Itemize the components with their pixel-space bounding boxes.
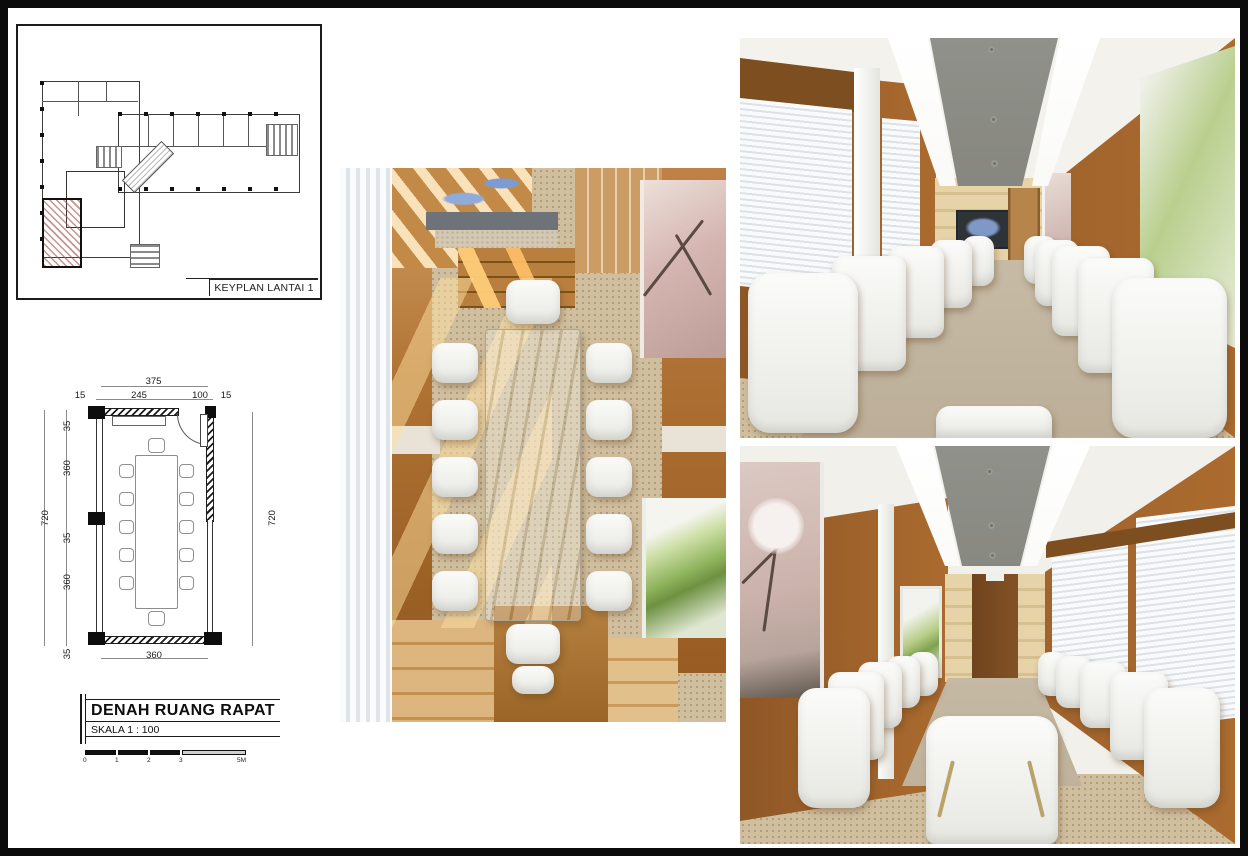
presentation-sheet: KEYPLAN LANTAI 1 375 15 245 100 15 35 36…	[0, 0, 1248, 856]
wall-light-band	[662, 426, 726, 452]
chair	[432, 457, 478, 497]
dim-label: 100	[186, 390, 214, 401]
render-top-view	[340, 168, 726, 722]
artwork-green	[642, 498, 726, 638]
chair	[586, 457, 632, 497]
keyplan-stairs	[130, 244, 160, 268]
wall-left	[96, 412, 103, 638]
dim-label: 375	[120, 376, 187, 387]
chair-plan	[148, 611, 165, 626]
wall-mounted-device	[986, 574, 1004, 581]
tree-canopy	[748, 498, 804, 554]
column	[88, 512, 105, 525]
scale-tick: 3	[179, 757, 183, 764]
wall-right-lower	[207, 520, 213, 634]
chair-plan	[119, 548, 134, 562]
branch-detail	[675, 234, 712, 296]
scale-tick: 5M	[237, 757, 246, 764]
chair	[506, 280, 560, 324]
ceiling-spotlight	[989, 552, 996, 559]
chair-plan	[179, 520, 194, 534]
floor-plan: 375 15 245 100 15 35 360 35 360 35 720 7…	[0, 360, 330, 680]
scale-tick: 0	[83, 757, 87, 764]
title-block: DENAH RUANG RAPAT SKALA 1 : 100 0 1 2 3 …	[0, 690, 320, 780]
title-block-line	[86, 736, 280, 737]
scale-bar: 0 1 2 3 5M	[85, 748, 251, 766]
scale-bar-segment	[85, 750, 116, 755]
render-perspective-b	[740, 446, 1235, 844]
chair-plan	[119, 576, 134, 590]
branch-detail	[643, 219, 704, 296]
chair	[748, 273, 858, 433]
keyplan-stairs	[266, 124, 298, 156]
dim-label: 360	[61, 568, 73, 596]
dim-label: 35	[61, 412, 73, 440]
chair-plan	[148, 438, 165, 453]
chair	[586, 514, 632, 554]
keyplan-panel: KEYPLAN LANTAI 1	[16, 24, 322, 300]
scale-bar-segment	[182, 750, 246, 755]
ceiling-spotlight	[988, 522, 995, 529]
sheet-title: DENAH RUANG RAPAT	[91, 702, 275, 720]
dim-label: 15	[70, 390, 90, 401]
keyplan-columns-row	[118, 187, 298, 191]
chair-foreground	[926, 716, 1058, 844]
tv-cabinet-band	[426, 212, 558, 230]
artwork-pink-tree	[740, 462, 824, 698]
far-wall-dark-panel	[972, 574, 1018, 682]
dim-label: 720	[266, 504, 278, 532]
chair-plan	[179, 576, 194, 590]
chair	[506, 624, 560, 664]
chair	[936, 406, 1052, 438]
conference-table	[486, 330, 580, 620]
chair	[586, 343, 632, 383]
column	[88, 406, 105, 419]
dim-label: 15	[215, 390, 237, 401]
chair-arm-metal	[937, 760, 955, 817]
window-blinds	[340, 168, 392, 722]
chair	[432, 514, 478, 554]
scale-tick: 1	[115, 757, 119, 764]
chair	[1144, 688, 1220, 808]
wood-floor-planks	[608, 638, 678, 722]
dim-label: 35	[61, 524, 73, 552]
ceiling-spotlight	[991, 160, 998, 167]
keyplan-partition	[42, 101, 138, 102]
ceiling-spotlight	[988, 46, 995, 53]
keyplan-partition	[198, 114, 199, 146]
column	[204, 632, 222, 645]
conference-table-plan	[135, 455, 178, 609]
chair	[586, 571, 632, 611]
chair	[432, 571, 478, 611]
column	[88, 632, 105, 645]
door-leaf	[200, 414, 208, 447]
chair	[586, 400, 632, 440]
scale-bar-segment	[118, 750, 148, 755]
wall-top	[101, 408, 179, 416]
chair	[798, 688, 870, 808]
keyplan-partition	[148, 114, 149, 146]
chair-arm-metal	[1027, 760, 1045, 817]
dim-label: 360	[130, 650, 178, 661]
dim-label: 720	[39, 504, 51, 532]
wood-floor-planks	[392, 620, 494, 722]
keyplan-partition	[248, 114, 249, 146]
chair-plan	[179, 464, 194, 478]
chair	[512, 666, 554, 694]
dim-label: 360	[61, 454, 73, 482]
chair-plan	[119, 464, 134, 478]
keyplan-label: KEYPLAN LANTAI 1	[209, 279, 318, 296]
chair-plan	[179, 548, 194, 562]
scale-tick: 2	[147, 757, 151, 764]
dim-line-right-outer	[252, 412, 253, 646]
scale-label: SKALA 1 : 100	[91, 724, 159, 736]
chair-plan	[119, 492, 134, 506]
artwork-pink-blossom	[640, 180, 726, 358]
chair	[432, 343, 478, 383]
dim-label: 35	[61, 640, 73, 668]
keyplan-columns-row	[118, 112, 298, 116]
keyplan-highlighted-meeting-room	[42, 198, 82, 268]
ceiling-spotlight	[986, 468, 993, 475]
keyplan-partition	[173, 114, 174, 146]
title-block-line	[86, 699, 280, 700]
keyplan-partition	[223, 114, 224, 146]
chair-plan	[179, 492, 194, 506]
keyplan-partition	[78, 81, 79, 116]
ceiling-spotlight	[990, 116, 997, 123]
credenza	[112, 416, 166, 426]
render-perspective-a	[740, 38, 1235, 438]
marble-credenza	[435, 230, 558, 248]
chair	[1112, 278, 1227, 438]
scale-bar-segment	[150, 750, 180, 755]
dim-label: 245	[117, 390, 161, 401]
keyplan-stairs	[96, 146, 122, 168]
chair-plan	[119, 520, 134, 534]
chair	[432, 400, 478, 440]
title-block-line	[86, 721, 280, 722]
wall-bottom	[101, 636, 210, 644]
keyplan-partition	[106, 81, 107, 101]
